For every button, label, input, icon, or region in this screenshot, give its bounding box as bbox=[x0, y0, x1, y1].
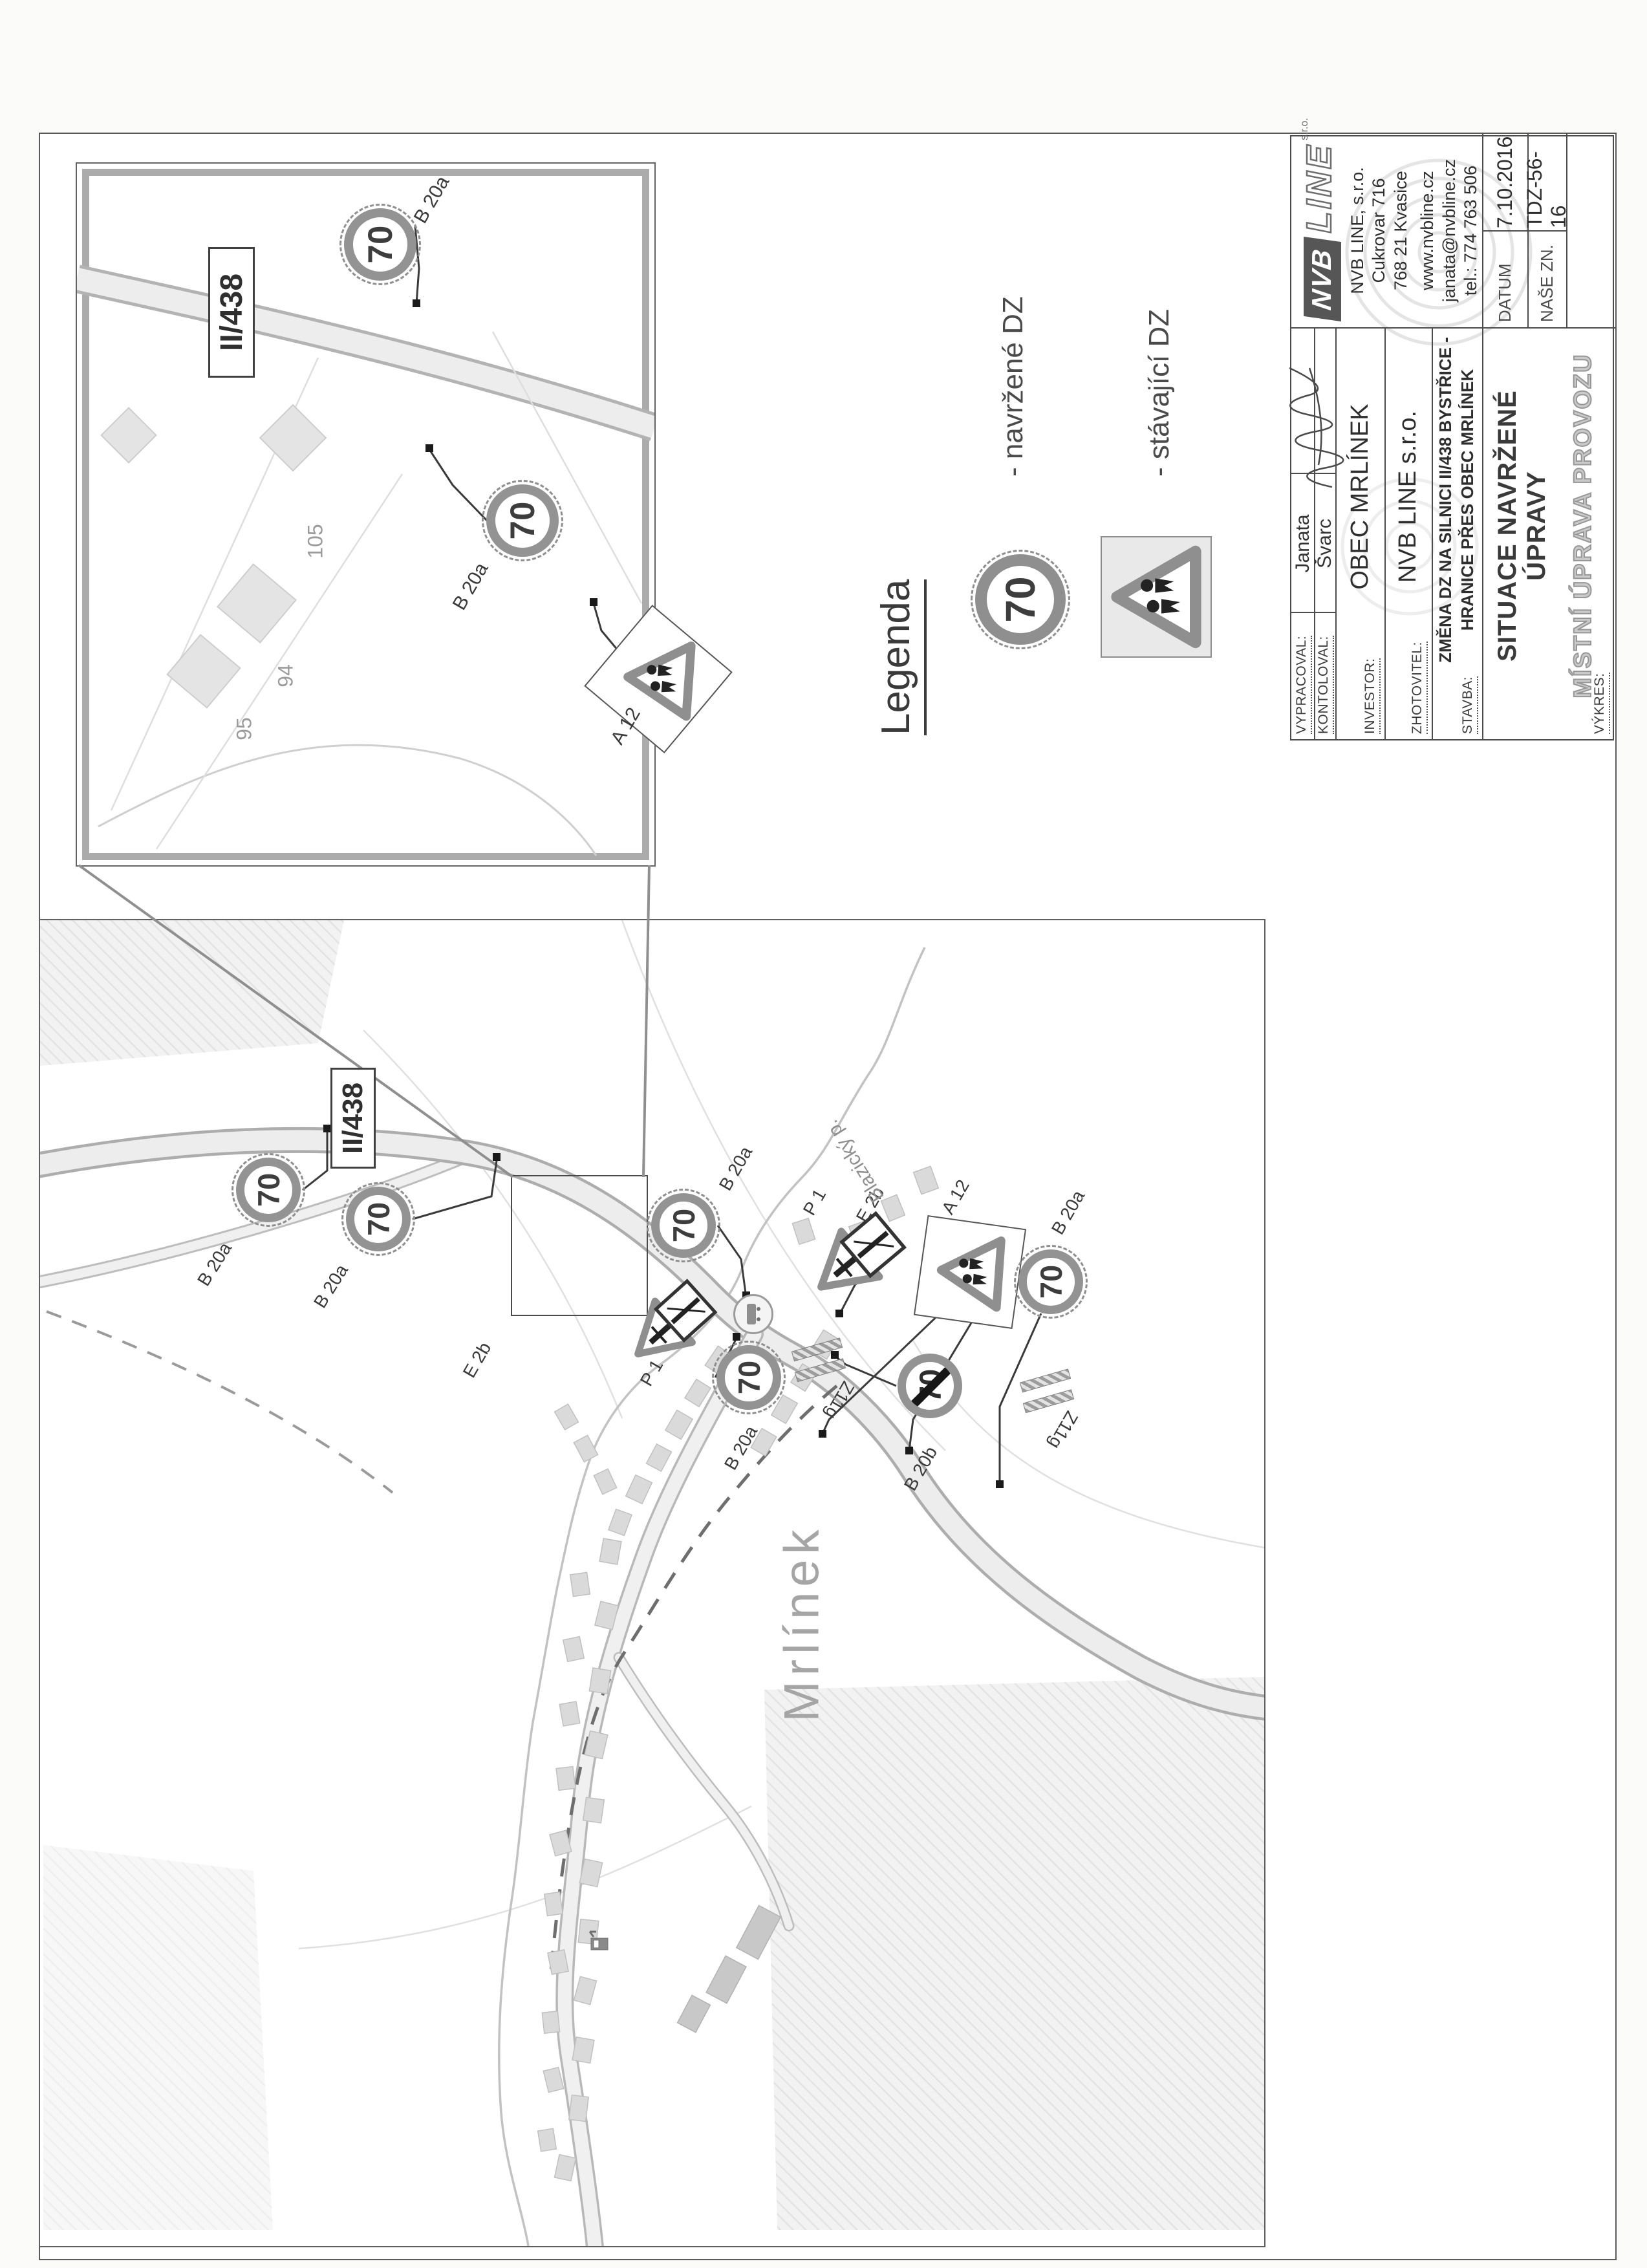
boundary-dashed-2 bbox=[47, 1312, 393, 1493]
sign-b20a-west1: 70 bbox=[236, 1158, 301, 1222]
kontoloval-value: Švarc bbox=[1314, 475, 1335, 612]
drawing-sheet: Legenda 70 - navržené DZ - stávající DZ bbox=[39, 133, 1617, 2260]
datum-value: 7.10.2016 bbox=[1483, 134, 1526, 228]
company-phone: tel.: 774 763 506 bbox=[1460, 134, 1481, 327]
main-map bbox=[39, 919, 1265, 2247]
inset-parcels bbox=[102, 405, 326, 707]
town-label: Mrlínek bbox=[774, 1524, 830, 1722]
inset-parcel-105: 105 bbox=[304, 524, 328, 558]
road-branch bbox=[619, 1658, 789, 1926]
sign-b20a-south: 70 bbox=[716, 1345, 781, 1410]
logo-line-text: LINE bbox=[1299, 143, 1339, 233]
inset-sign-b20a-mid: 70 bbox=[486, 484, 559, 557]
inset-road bbox=[77, 279, 654, 427]
legend-title: Legenda bbox=[873, 579, 927, 735]
vypracoval-value: Janata bbox=[1291, 475, 1314, 612]
company-web: www.nvbline.cz bbox=[1417, 134, 1438, 327]
inset-parcel-95: 95 bbox=[233, 717, 257, 740]
company-email: janata@nvbline.cz bbox=[1439, 134, 1460, 327]
field-hatched-ne bbox=[40, 920, 344, 1066]
bus-stop-icon bbox=[733, 1294, 773, 1334]
field-hatched-w bbox=[43, 1845, 273, 2230]
company-logo: NVBLINE s.r.o. bbox=[1299, 140, 1340, 319]
fuel-pump-icon bbox=[590, 1932, 608, 1950]
legend-speed-70-sign: 70 bbox=[975, 554, 1066, 645]
company-street: Cukrovar 716 bbox=[1368, 134, 1390, 327]
inset-road-number-box: II/438 bbox=[208, 247, 255, 378]
stavba-value: ZMĚNA DZ NA SILNICI II/438 BYSTŘICE - HR… bbox=[1435, 332, 1480, 668]
farm-buildings bbox=[678, 1905, 781, 2032]
legend-speed-value: 70 bbox=[996, 576, 1044, 622]
legend: Legenda 70 - navržené DZ - stávající DZ bbox=[860, 171, 1222, 753]
inset-sign-b20a-top: 70 bbox=[344, 208, 416, 281]
legend-children-warning-sign bbox=[1101, 536, 1212, 658]
legend-existing-label: - stávající DZ bbox=[1143, 309, 1176, 477]
kontoloval-label: KONTOLOVAL: bbox=[1314, 614, 1335, 734]
map-road-number-box: II/438 bbox=[330, 1068, 376, 1169]
sign-b20a-crossing: 70 bbox=[651, 1193, 716, 1258]
zhotovitel-value: NVB LINE s.r.o. bbox=[1384, 358, 1432, 636]
inset-parcel-94: 94 bbox=[274, 664, 298, 687]
nase-zn-label: NAŠE ZN. bbox=[1529, 233, 1565, 322]
company-address: NVB LINE, s.r.o. Cukrovar 716 768 21 Kva… bbox=[1347, 134, 1482, 327]
legend-proposed-label: - navržené DZ bbox=[997, 296, 1029, 477]
logo-nvb-box: NVB bbox=[1304, 237, 1341, 321]
scanned-traffic-plan: { "symbols": { "speed": "70" }, "legend"… bbox=[0, 0, 1647, 2268]
company-name: NVB LINE, s.r.o. bbox=[1347, 134, 1368, 327]
sign-b20b: 70 bbox=[898, 1354, 962, 1418]
nase-zn-value: TDZ-56-16 bbox=[1529, 134, 1565, 228]
datum-label: DATUM bbox=[1483, 233, 1526, 322]
logo-sro: s.r.o. bbox=[1299, 118, 1310, 140]
vypracoval-label: VYPRACOVAL: bbox=[1291, 614, 1314, 734]
investor-value: OBEC MRLÍNEK bbox=[1335, 358, 1384, 636]
map-linework bbox=[40, 920, 1264, 2246]
sign-b20a-west2: 70 bbox=[346, 1187, 411, 1251]
company-city: 768 21 Kvasice bbox=[1390, 134, 1412, 327]
inset-path bbox=[98, 745, 596, 856]
title-block: VYPRACOVAL: Janata KONTOLOVAL: Švarc INV… bbox=[1290, 135, 1614, 740]
inset-cadastre-3 bbox=[493, 332, 641, 603]
field-hatched-se bbox=[764, 1677, 1264, 2230]
sign-b20a-east: 70 bbox=[1018, 1249, 1083, 1314]
detail-target-rect bbox=[511, 1175, 648, 1316]
vykres-value: SITUACE NAVRŽENÉ ÚPRAVY MÍSTNÍ ÚPRAVA PR… bbox=[1493, 332, 1597, 720]
sign-a12-plate bbox=[914, 1215, 1026, 1329]
